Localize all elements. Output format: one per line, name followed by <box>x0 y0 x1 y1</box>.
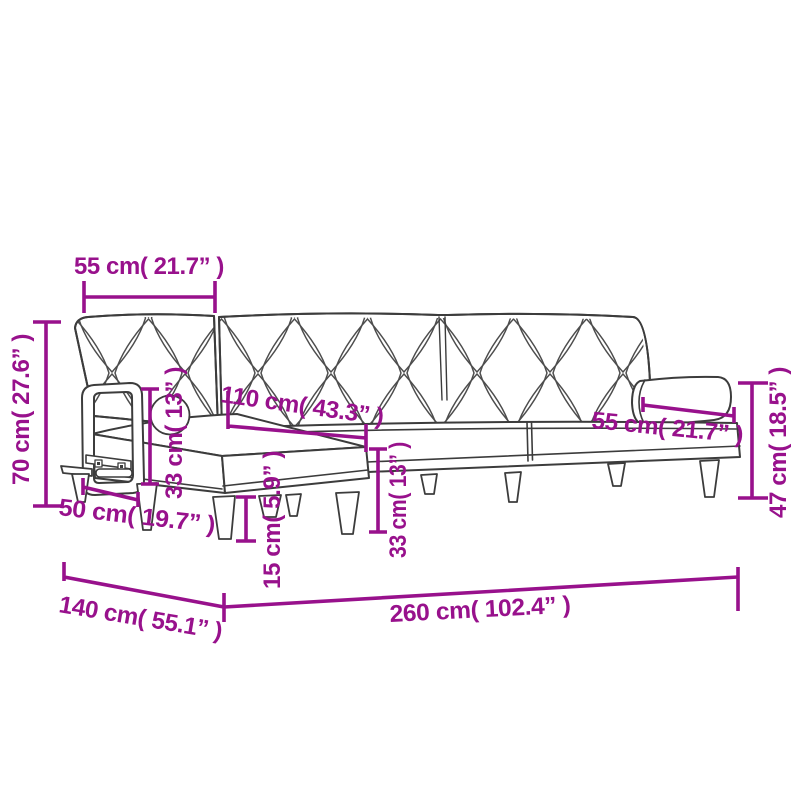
svg-text:15 cm( 5.9” ): 15 cm( 5.9” ) <box>259 451 286 589</box>
svg-text:47 cm( 18.5” ): 47 cm( 18.5” ) <box>765 367 792 518</box>
svg-text:33 cm( 13” ): 33 cm( 13” ) <box>161 367 188 499</box>
svg-text:33 cm( 13” ): 33 cm( 13” ) <box>385 442 412 558</box>
svg-text:55 cm( 21.7” ): 55 cm( 21.7” ) <box>74 253 224 280</box>
svg-text:70 cm( 27.6” ): 70 cm( 27.6” ) <box>8 334 35 485</box>
